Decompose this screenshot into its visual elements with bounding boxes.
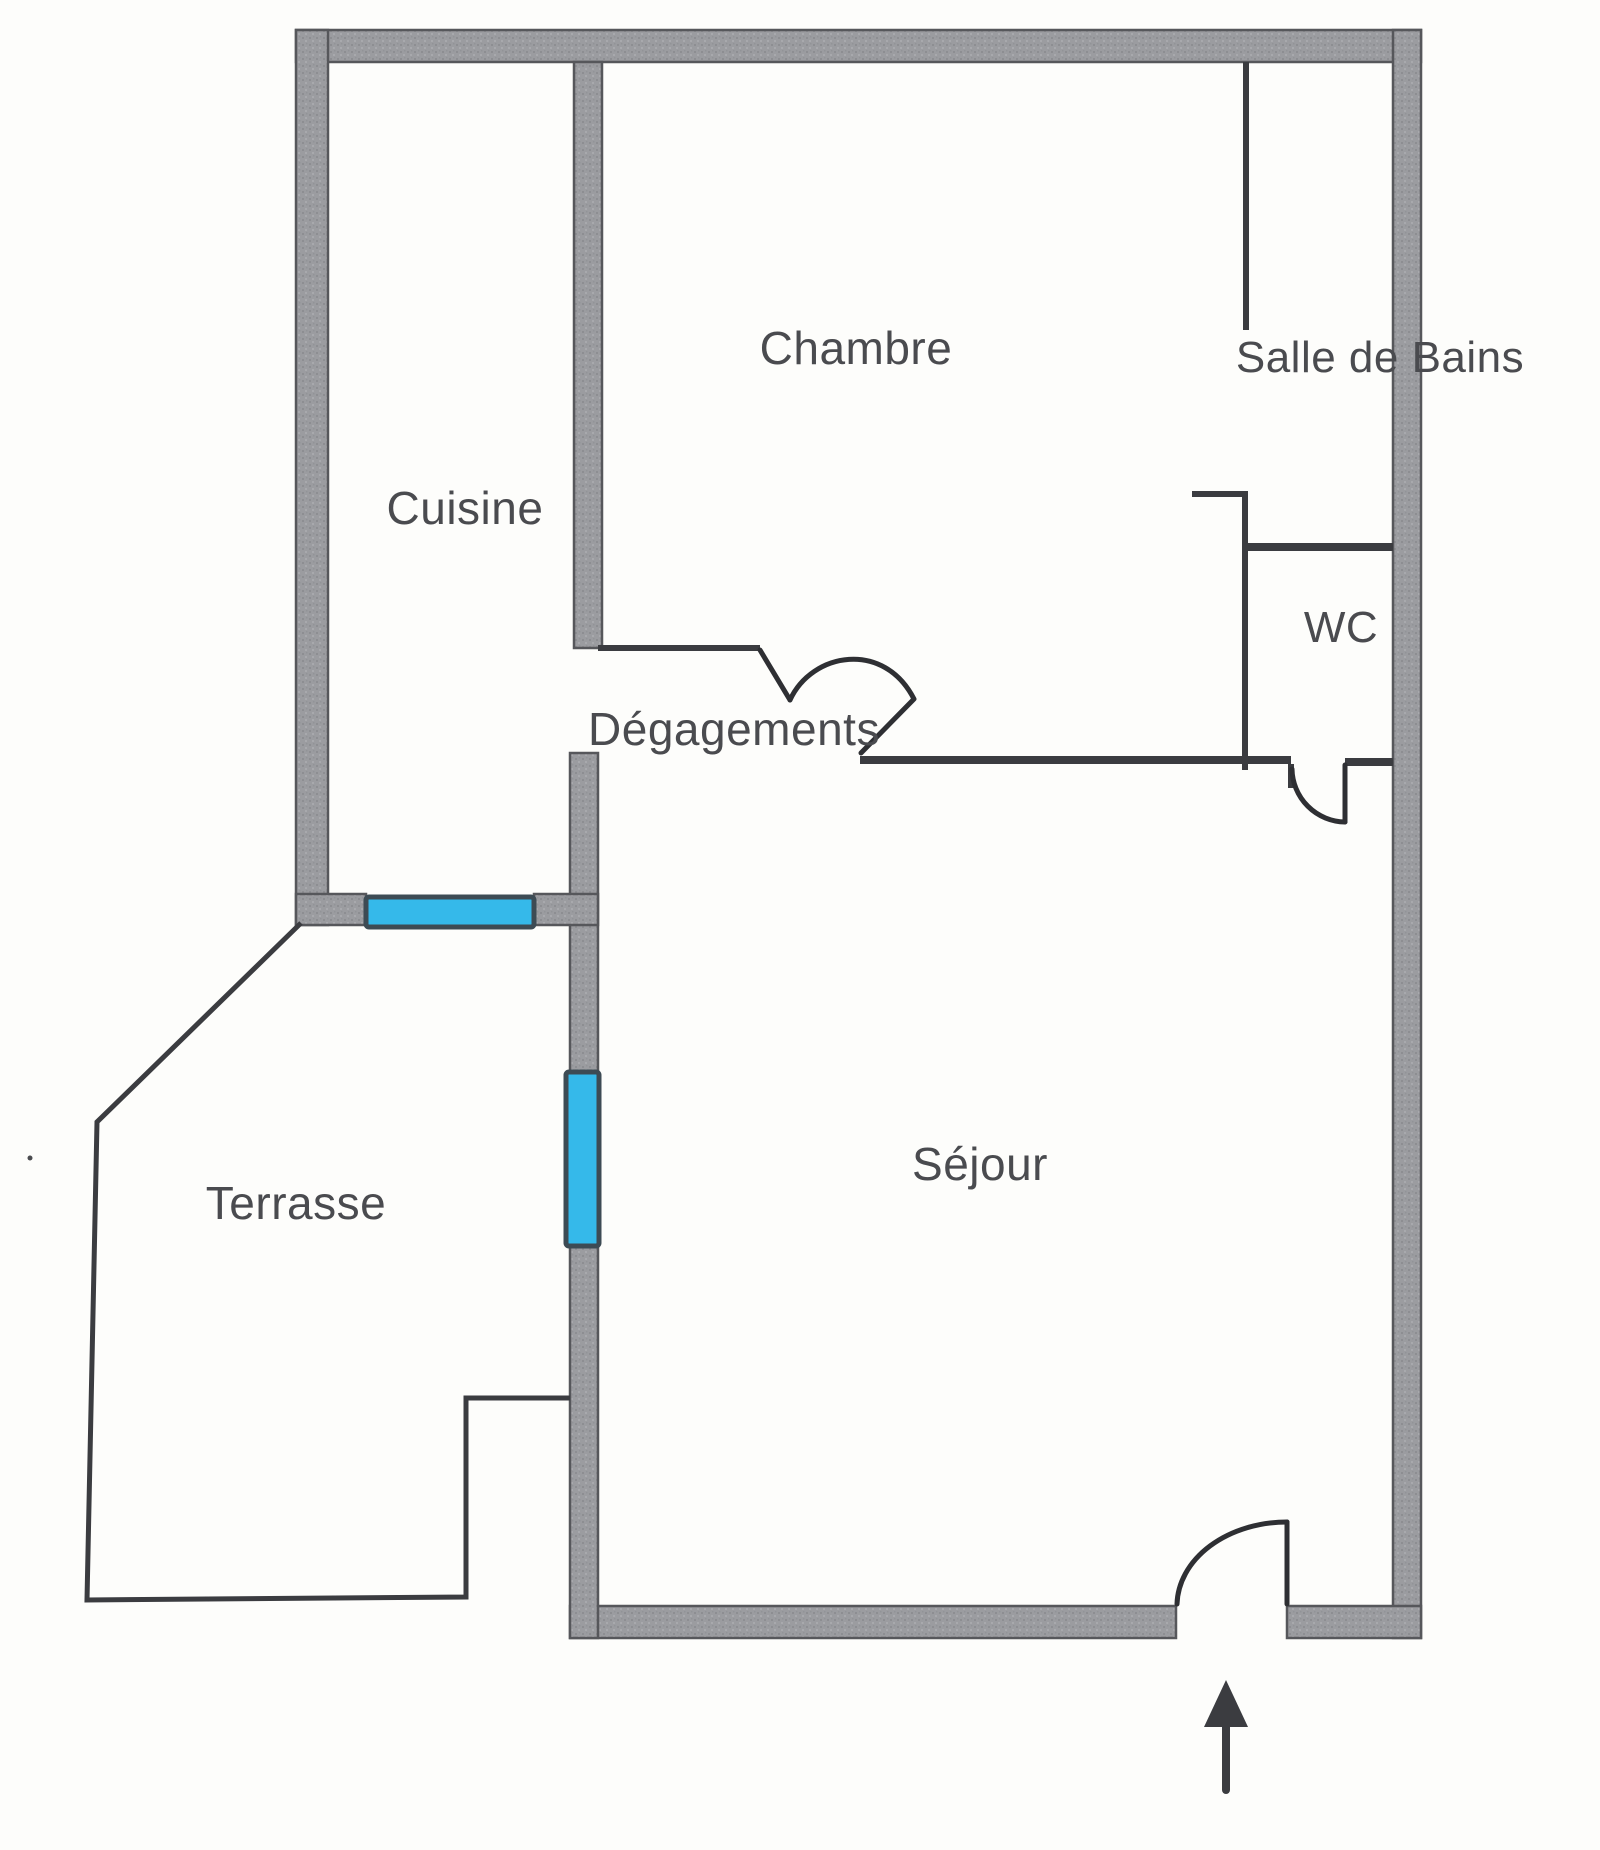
wall-cuisine-bottom-right-segment (534, 894, 598, 925)
entrance-arrow-head (1204, 1680, 1248, 1727)
door-leaf-chambre (760, 650, 790, 700)
entrance-arrow-icon (1204, 1680, 1248, 1790)
wall-left (296, 30, 328, 925)
floor-plan-drawing: Chambre Salle de Bains Cuisine Dégagemen… (0, 0, 1600, 1850)
interior-walls (598, 62, 1393, 788)
room-label-terrasse: Terrasse (206, 1177, 386, 1229)
wall-sdb-stub (1192, 491, 1248, 497)
room-label-wc: WC (1304, 603, 1378, 652)
wall-top (296, 30, 1421, 62)
room-label-salle-de-bains: Salle de Bains (1236, 333, 1524, 382)
room-label-degagements: Dégagements (588, 703, 880, 755)
room-label-cuisine: Cuisine (387, 482, 544, 534)
windows (366, 897, 599, 1246)
room-labels: Chambre Salle de Bains Cuisine Dégagemen… (206, 322, 1524, 1229)
wall-chambre-sdb-divider (1243, 62, 1249, 330)
door-arc-wc (1292, 769, 1345, 822)
wall-right (1393, 30, 1421, 1638)
wall-bottom-left-segment (570, 1606, 1176, 1638)
wall-wc-left (1242, 494, 1248, 770)
doors (760, 650, 1345, 1604)
wall-divider-cuisine-chambre (574, 62, 602, 648)
door-arc-entrance (1177, 1522, 1287, 1604)
scan-speck (28, 1156, 33, 1161)
room-label-sejour: Séjour (912, 1138, 1048, 1190)
terrasse-boundary-line (87, 923, 570, 1600)
wall-wc-south-right (1345, 758, 1393, 766)
wall-bottom-right-segment (1287, 1606, 1421, 1638)
floor-plan: Chambre Salle de Bains Cuisine Dégagemen… (0, 0, 1600, 1850)
wall-sejour-left-lower (570, 1246, 598, 1638)
wall-wc-top (1245, 543, 1393, 551)
room-label-chambre: Chambre (760, 322, 953, 374)
wall-chambre-south (598, 645, 760, 651)
wall-cuisine-bottom-left-segment (296, 894, 366, 925)
window-cuisine-horizontal (366, 897, 534, 927)
wall-sejour-north (860, 756, 1291, 764)
window-sejour-vertical (566, 1072, 599, 1246)
